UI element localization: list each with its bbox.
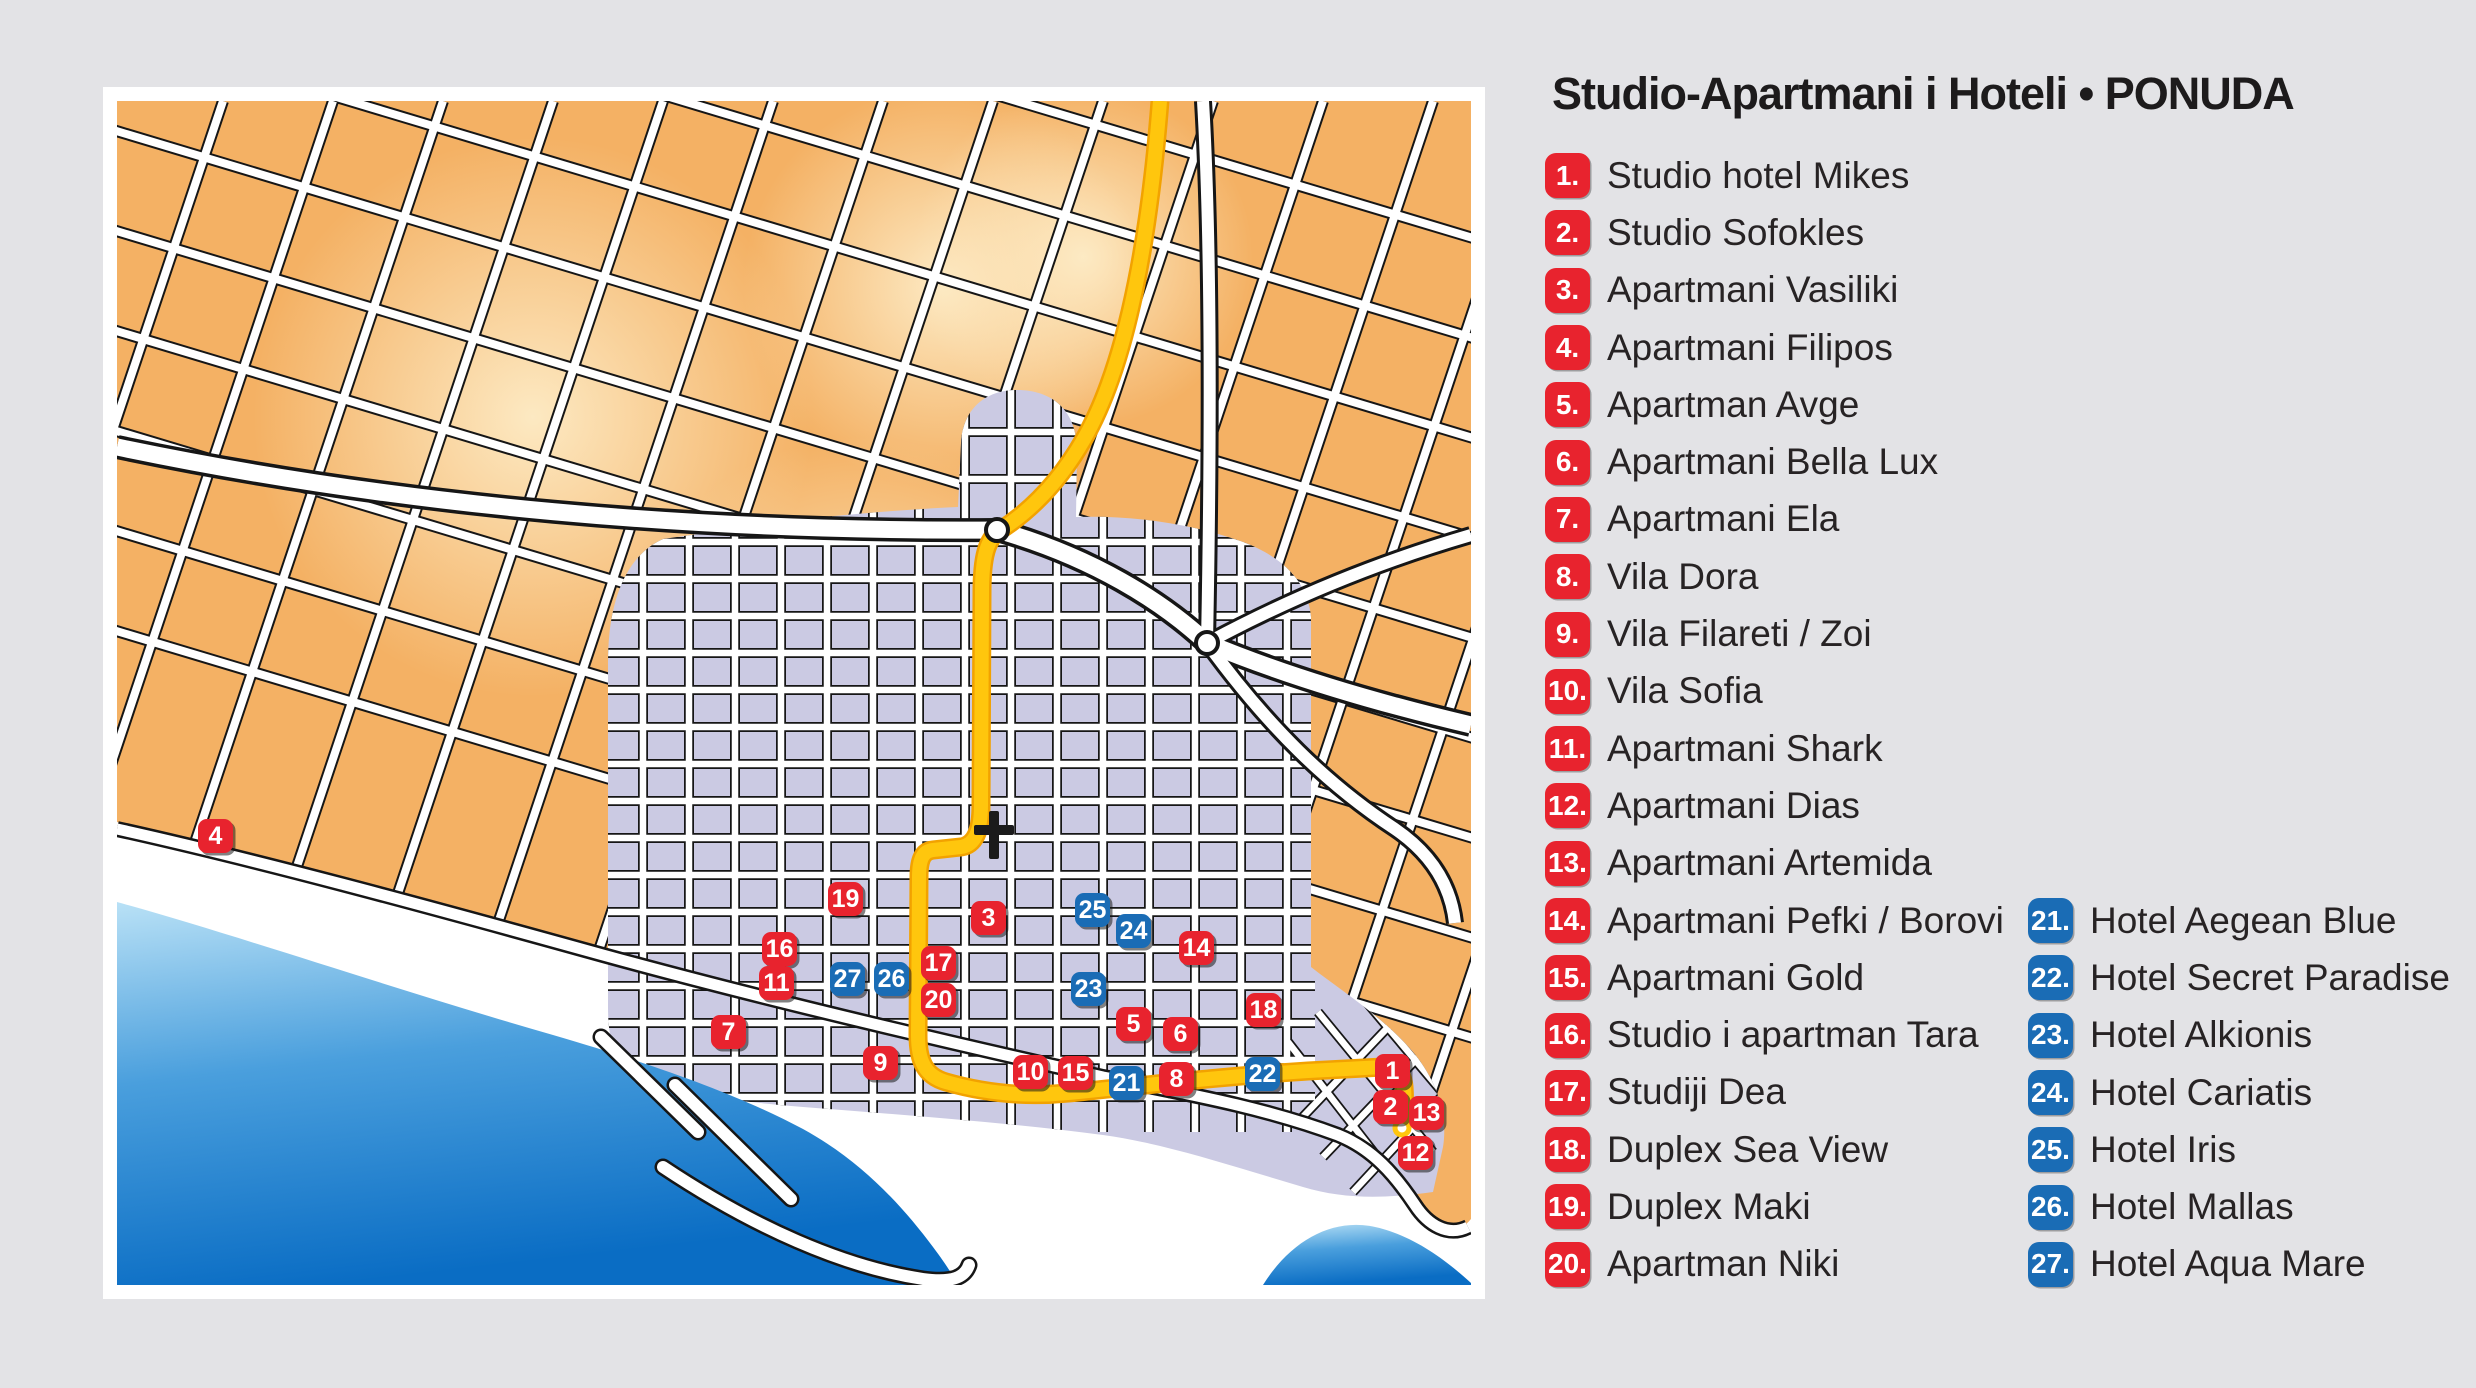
legend-item-badge-4: 4. [1545, 325, 1590, 370]
legend-item-label: Apartmani Pefki / Borovi [1607, 900, 2004, 942]
map-marker-16[interactable]: 16 [762, 932, 797, 966]
legend-item: 18. Duplex Sea View [1545, 1121, 2004, 1178]
legend-item-badge-15: 15. [1545, 955, 1590, 1000]
legend-item: 25. Hotel Iris [2028, 1121, 2450, 1178]
legend-item: 13. Apartmani Artemida [1545, 835, 2004, 892]
legend-item-label: Apartmani Gold [1607, 957, 1864, 999]
legend-item: 16. Studio i apartman Tara [1545, 1006, 2004, 1063]
legend-item-badge-1: 1. [1545, 153, 1590, 198]
map-marker-15[interactable]: 15 [1058, 1056, 1093, 1090]
map-marker-1[interactable]: 1 [1375, 1054, 1410, 1088]
map-marker-8[interactable]: 8 [1159, 1062, 1194, 1096]
page: { "legend": { "title": "Studio-Apartmani… [0, 0, 2476, 1388]
legend-item-label: Apartmani Bella Lux [1607, 441, 1938, 483]
map-marker-13[interactable]: 13 [1409, 1096, 1444, 1130]
legend-item: 22. Hotel Secret Paradise [2028, 949, 2450, 1006]
map-marker-20[interactable]: 20 [921, 983, 956, 1017]
legend-item-badge-17: 17. [1545, 1070, 1590, 1115]
map-marker-7[interactable]: 7 [711, 1015, 746, 1049]
map-marker-17[interactable]: 17 [921, 946, 956, 980]
map-marker-10[interactable]: 10 [1013, 1055, 1048, 1089]
map-marker-21[interactable]: 21 [1109, 1066, 1144, 1100]
legend-item-label: Studio hotel Mikes [1607, 155, 1909, 197]
legend-item-badge-10: 10. [1545, 669, 1590, 714]
legend-item: 17. Studiji Dea [1545, 1064, 2004, 1121]
map-card: 4 19 3 25 24 14 16 17 27 26 11 23 20 18 … [103, 87, 1485, 1299]
legend-item-label: Apartmani Ela [1607, 498, 1839, 540]
legend-item-label: Vila Dora [1607, 556, 1759, 598]
map-marker-5[interactable]: 5 [1116, 1007, 1151, 1041]
legend-column-right: 21. Hotel Aegean Blue 22. Hotel Secret P… [2028, 892, 2450, 1293]
legend-item: 21. Hotel Aegean Blue [2028, 892, 2450, 949]
legend-item-label: Vila Sofia [1607, 670, 1763, 712]
legend-column-left: 1. Studio hotel Mikes 2. Studio Sofokles… [1545, 147, 2004, 1293]
legend-item-label: Studiji Dea [1607, 1071, 1786, 1113]
legend-item-badge-16: 16. [1545, 1013, 1590, 1058]
map-marker-11[interactable]: 11 [759, 966, 794, 1000]
legend-item-badge-8: 8. [1545, 554, 1590, 599]
legend-item-label: Studio Sofokles [1607, 212, 1864, 254]
legend-item-badge-18: 18. [1545, 1127, 1590, 1172]
legend-item-label: Apartmani Shark [1607, 728, 1883, 770]
legend-item-badge-6: 6. [1545, 440, 1590, 485]
legend-item: 3. Apartmani Vasiliki [1545, 262, 2004, 319]
legend-item-label: Apartman Niki [1607, 1243, 1839, 1285]
map-marker-9[interactable]: 9 [863, 1046, 898, 1080]
legend-item-label: Studio i apartman Tara [1607, 1014, 1979, 1056]
legend-item-badge-22: 22. [2028, 955, 2073, 1000]
legend-item: 15. Apartmani Gold [1545, 949, 2004, 1006]
legend-item-badge-3: 3. [1545, 268, 1590, 313]
legend-item: 24. Hotel Cariatis [2028, 1064, 2450, 1121]
legend-item-badge-25: 25. [2028, 1127, 2073, 1172]
legend-item-label: Hotel Aqua Mare [2090, 1243, 2366, 1285]
map-marker-18[interactable]: 18 [1246, 993, 1281, 1027]
legend-item-badge-21: 21. [2028, 898, 2073, 943]
legend-item: 8. Vila Dora [1545, 548, 2004, 605]
map-marker-6[interactable]: 6 [1163, 1017, 1198, 1051]
map-marker-27[interactable]: 27 [830, 962, 865, 996]
legend-item-badge-7: 7. [1545, 497, 1590, 542]
legend-item-label: Hotel Cariatis [2090, 1072, 2312, 1114]
legend-item-label: Apartmani Vasiliki [1607, 269, 1898, 311]
legend-item-label: Apartmani Dias [1607, 785, 1860, 827]
legend-item: 7. Apartmani Ela [1545, 491, 2004, 548]
legend-item: 10. Vila Sofia [1545, 663, 2004, 720]
legend-item: 20. Apartman Niki [1545, 1236, 2004, 1293]
legend-item-label: Apartmani Filipos [1607, 327, 1893, 369]
legend-title: Studio-Apartmani i Hoteli • PONUDA [1552, 68, 2294, 120]
legend-item-label: Apartman Avge [1607, 384, 1859, 426]
legend-item-badge-24: 24. [2028, 1070, 2073, 1115]
map-marker-3[interactable]: 3 [971, 901, 1006, 935]
legend-item-label: Hotel Alkionis [2090, 1014, 2312, 1056]
legend-item-badge-26: 26. [2028, 1185, 2073, 1230]
legend-item-label: Hotel Secret Paradise [2090, 957, 2450, 999]
legend-item-label: Duplex Sea View [1607, 1129, 1888, 1171]
map-marker-19[interactable]: 19 [828, 882, 863, 916]
map-marker-26[interactable]: 26 [874, 962, 909, 996]
legend-item: 12. Apartmani Dias [1545, 777, 2004, 834]
map-marker-23[interactable]: 23 [1071, 972, 1106, 1006]
legend-item: 19. Duplex Maki [1545, 1178, 2004, 1235]
map-marker-24[interactable]: 24 [1116, 914, 1151, 948]
legend-item: 2. Studio Sofokles [1545, 204, 2004, 261]
legend-item-badge-19: 19. [1545, 1184, 1590, 1229]
legend-item: 5. Apartman Avge [1545, 376, 2004, 433]
map-marker-12[interactable]: 12 [1398, 1136, 1433, 1170]
legend-item: 9. Vila Filareti / Zoi [1545, 605, 2004, 662]
map-marker-25[interactable]: 25 [1075, 893, 1110, 927]
map-marker-2[interactable]: 2 [1373, 1090, 1408, 1124]
legend-item-badge-5: 5. [1545, 382, 1590, 427]
legend-item-badge-11: 11. [1545, 726, 1590, 771]
legend-item-label: Hotel Mallas [2090, 1186, 2294, 1228]
legend-item: 6. Apartmani Bella Lux [1545, 433, 2004, 490]
legend-item-badge-23: 23. [2028, 1013, 2073, 1058]
legend-item-label: Duplex Maki [1607, 1186, 1811, 1228]
legend-item-badge-13: 13. [1545, 841, 1590, 886]
legend-item-label: Apartmani Artemida [1607, 842, 1932, 884]
legend-item-badge-12: 12. [1545, 783, 1590, 828]
map-marker-22[interactable]: 22 [1245, 1057, 1280, 1091]
legend-item: 11. Apartmani Shark [1545, 720, 2004, 777]
map-marker-14[interactable]: 14 [1179, 931, 1214, 965]
legend-item-badge-14: 14. [1545, 898, 1590, 943]
legend-item: 14. Apartmani Pefki / Borovi [1545, 892, 2004, 949]
map-marker-4[interactable]: 4 [198, 819, 233, 853]
legend-item-label: Hotel Aegean Blue [2090, 900, 2397, 942]
legend-item: 27. Hotel Aqua Mare [2028, 1236, 2450, 1293]
legend-item: 1. Studio hotel Mikes [1545, 147, 2004, 204]
legend-item-label: Hotel Iris [2090, 1129, 2236, 1171]
legend-item: 23. Hotel Alkionis [2028, 1007, 2450, 1064]
legend-item: 4. Apartmani Filipos [1545, 319, 2004, 376]
legend-item: 26. Hotel Mallas [2028, 1178, 2450, 1235]
legend-item-badge-9: 9. [1545, 612, 1590, 657]
legend-item-badge-20: 20. [1545, 1242, 1590, 1287]
map-markers-layer: 4 19 3 25 24 14 16 17 27 26 11 23 20 18 … [103, 87, 1485, 1299]
legend-item-badge-2: 2. [1545, 210, 1590, 255]
legend-item-badge-27: 27. [2028, 1242, 2073, 1287]
legend-item-label: Vila Filareti / Zoi [1607, 613, 1872, 655]
